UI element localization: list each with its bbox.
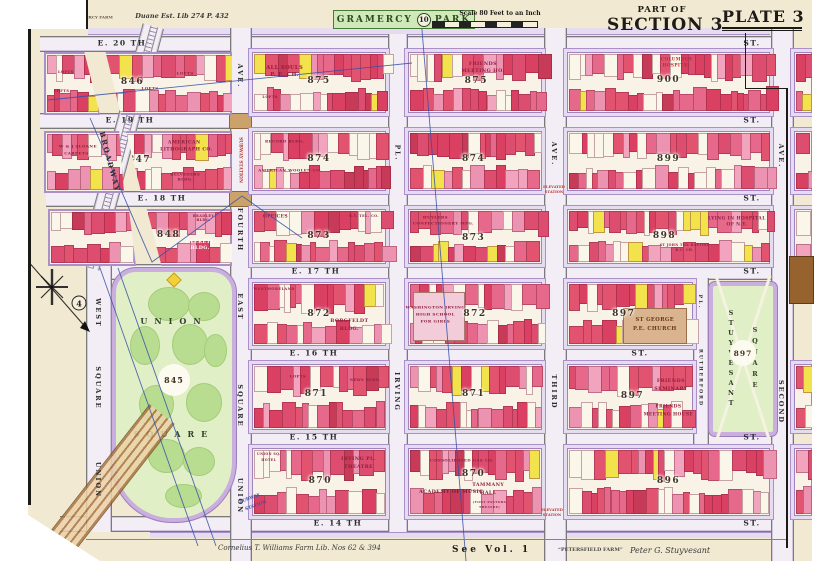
avenue-label: PL. xyxy=(697,294,703,309)
neatline-bottom xyxy=(86,539,786,540)
building-lot xyxy=(90,169,103,190)
building-lot xyxy=(187,92,201,113)
block-number: 897 xyxy=(621,391,644,401)
block-900: COLUMBUSHOSPITAL900 xyxy=(567,52,770,113)
street-suffix-e-14th: ST. xyxy=(743,519,760,528)
building-lot xyxy=(581,450,595,480)
block-874: 874 xyxy=(408,131,542,191)
building-lot xyxy=(505,170,519,189)
subway-box-18th xyxy=(229,191,252,207)
plate-underline xyxy=(722,27,802,29)
building-label: MEETING HO. xyxy=(461,68,504,74)
street-name-e-20th: E. 20 TH xyxy=(98,39,147,48)
block-number: 846 xyxy=(121,77,144,87)
building-lot xyxy=(761,243,770,262)
map-annotation: Duane Est. Lib 274 P. 432 xyxy=(135,12,228,20)
street-name-e-16th: E. 16 TH xyxy=(290,349,339,358)
building-label: CONFECTIONERY MFG. xyxy=(413,220,474,225)
street-suffix-e-18th: ST. xyxy=(743,194,760,203)
building-lot xyxy=(410,90,424,111)
building-lot xyxy=(267,366,281,393)
gramercy-park-label-left: GRAMERCY xyxy=(337,15,413,25)
block-872: WASHINGTON IRVINGHIGH SCHOOLFOR GIRLS872 xyxy=(408,282,542,346)
building-lot xyxy=(381,324,392,344)
building-lot xyxy=(796,450,809,473)
building-label: THEATRE xyxy=(344,464,373,470)
building-lot xyxy=(766,86,778,111)
part-of-label: PART OF xyxy=(607,5,717,15)
plate-ref-4: 4 xyxy=(72,296,87,311)
building-lot xyxy=(536,284,551,309)
building-lot xyxy=(525,54,539,73)
building-label: ST JOHN THE BAPTIST xyxy=(660,243,710,247)
building-lot xyxy=(330,170,345,189)
building-label: ALL SOULS xyxy=(266,65,303,71)
avenue-label: UNION xyxy=(236,478,244,514)
building-label: FRIENDS xyxy=(469,61,497,67)
block-number: 897 xyxy=(612,309,635,319)
block-number: 870 xyxy=(309,476,332,486)
building-lot xyxy=(535,407,542,428)
subway-box-19th xyxy=(229,113,252,129)
building-lot xyxy=(706,89,721,111)
building-label: LOFTS xyxy=(290,373,306,378)
map-annotation: STATION xyxy=(545,190,563,194)
building-lot xyxy=(693,87,707,111)
building-lot xyxy=(796,133,810,154)
building-lot xyxy=(431,170,445,189)
neatline-left xyxy=(28,29,31,505)
building-label: N.Y. TEL. CO. xyxy=(349,214,379,218)
building-lot xyxy=(148,247,157,263)
building-lot xyxy=(643,94,657,111)
park-foliage xyxy=(165,484,202,508)
neatline-right xyxy=(786,88,788,548)
building-lot xyxy=(90,55,101,83)
building-lot xyxy=(446,402,461,428)
building-lot xyxy=(311,327,326,344)
building-lot xyxy=(335,490,350,514)
block-sliver-24 xyxy=(794,52,812,113)
building-lot xyxy=(754,167,768,189)
scale-bar xyxy=(432,21,538,28)
building-lot xyxy=(646,488,660,514)
building-label: LOFTS xyxy=(54,89,69,93)
block-sliver-25 xyxy=(794,131,812,191)
street-suffix-e-16th: ST. xyxy=(631,349,648,358)
building-lot xyxy=(345,92,359,111)
building-lot xyxy=(221,212,231,235)
building-lot xyxy=(330,450,345,475)
building-lot xyxy=(470,165,484,189)
building-label: (TONY PASTORS xyxy=(473,500,506,504)
park-foliage xyxy=(172,324,209,365)
building-label: ACADEMY OF MUSIC xyxy=(419,489,483,495)
block-number: 875 xyxy=(465,76,488,86)
building-lot xyxy=(377,91,388,111)
block-874: RECORD BLDG.AMERICAN WOOLEN CO.874 xyxy=(252,131,386,191)
map-annotation: ELEVATED xyxy=(541,508,563,512)
avenue-label: IRVING xyxy=(393,372,401,412)
street-name-e-18th: E. 18 TH xyxy=(138,194,187,203)
street-name-e-14th: E. 14 TH xyxy=(314,519,363,528)
block-number: 873 xyxy=(462,233,485,243)
building-lot xyxy=(766,54,776,76)
building-label: LOFTS xyxy=(262,95,277,99)
building-label: CONSOLIDATED GAS CO. xyxy=(430,457,494,462)
building-lot xyxy=(760,492,769,514)
street-name-e-17th: E. 17 TH xyxy=(292,267,341,276)
building-lot xyxy=(300,93,314,111)
building-lot xyxy=(616,284,630,307)
block-870: CONSOLIDATED GAS CO.ACADEMY OF MUSICTAMM… xyxy=(408,448,542,516)
block-number: 870 xyxy=(462,469,485,479)
building-lot xyxy=(381,166,391,189)
stuyvesant-square-park: STUYVESANTSQUARE897 xyxy=(709,282,777,436)
block-number: 900 xyxy=(657,75,680,85)
avenue-label: SQUARE xyxy=(94,366,102,409)
building-label: NEWS BLDG. xyxy=(350,378,381,382)
plate-title: PLATE 3 xyxy=(722,7,802,26)
building-lot xyxy=(588,366,602,393)
block-sliver-2 xyxy=(48,209,136,266)
block-896: 896 xyxy=(567,448,770,516)
building-lot xyxy=(352,410,365,428)
block-875: ALL SOULSP. E. CH.LOFTS875 xyxy=(252,52,386,113)
building-lot xyxy=(357,133,370,160)
union-square-label: UNION xyxy=(140,316,207,326)
building-label: HALL xyxy=(480,490,497,496)
block-number: 896 xyxy=(657,476,680,486)
building-lot xyxy=(623,172,637,189)
building-label: WESTMORELAND xyxy=(253,287,294,291)
stuyvesant-number: 897 xyxy=(730,340,756,366)
building-lot xyxy=(478,408,492,428)
building-lot xyxy=(575,366,589,390)
avenue-label: RUTHERFORD xyxy=(698,349,703,407)
building-label: AMERICAN xyxy=(168,141,201,146)
avenue-label: SECOND xyxy=(777,380,785,424)
building-label: ST GEORGE xyxy=(635,317,674,323)
park-foliage xyxy=(204,334,227,368)
building-lot xyxy=(655,211,669,229)
block-897: ST GEORGEP.E. CHURCH897 xyxy=(567,282,693,346)
building-lot xyxy=(161,55,176,78)
building-label: SEMINARY xyxy=(654,386,687,392)
map-annotation: STATION xyxy=(543,513,561,517)
building-lot xyxy=(135,89,150,112)
map-canvas: E. 20 THST.E. 19 THST.E. 18 THST.E. 17 T… xyxy=(0,0,819,561)
building-lot xyxy=(254,366,268,392)
building-lot xyxy=(375,284,384,307)
building-label: W & J SLOANE xyxy=(59,143,97,148)
block-875: FRIENDSMEETING HO.875 xyxy=(408,52,542,113)
building-lot xyxy=(296,494,309,514)
building-lot xyxy=(569,488,583,514)
block-number: 871 xyxy=(305,389,328,399)
building-lot xyxy=(683,284,696,304)
street-suffix-e-19th: ST. xyxy=(743,116,760,125)
building-label: EVERETT xyxy=(186,239,214,245)
street-name-e-19th: E. 19 TH xyxy=(106,116,155,125)
building-lot xyxy=(72,212,85,230)
building-lot xyxy=(332,93,346,111)
building-lot xyxy=(120,246,134,263)
building-label: OF N.Y. xyxy=(727,223,748,228)
block-871: 871 xyxy=(408,364,542,430)
building-lot xyxy=(91,212,104,234)
building-label: HUYLERS xyxy=(423,215,448,220)
building-lot xyxy=(348,491,363,514)
building-lot xyxy=(381,211,394,229)
building-lot xyxy=(119,55,133,79)
block-870: UNION SQ.HOTELIRVING PL.THEATRE870 xyxy=(252,448,386,516)
avenue-label: AVE. xyxy=(777,144,785,169)
building-lot xyxy=(376,133,388,160)
building-lot xyxy=(177,243,190,263)
building-label: COLUMBUS xyxy=(661,56,692,61)
building-lot xyxy=(127,168,138,190)
building-label: BLDG. xyxy=(340,326,359,332)
building-lot xyxy=(767,167,778,190)
building-lot xyxy=(642,168,655,189)
building-lot xyxy=(532,366,543,387)
building-lot xyxy=(518,94,531,111)
building-lot xyxy=(522,284,537,305)
block-899: 899 xyxy=(567,131,770,191)
building-lot xyxy=(615,92,630,111)
building-lot xyxy=(320,366,334,387)
building-lot xyxy=(437,133,450,157)
building-lot xyxy=(383,54,394,74)
building-lot xyxy=(604,54,618,77)
building-lot xyxy=(269,410,283,428)
building-lot xyxy=(376,401,385,428)
building-lot xyxy=(752,54,767,82)
building-lot xyxy=(718,133,732,154)
block-872: WESTMORELANDBORGFELDTBLDG.872 xyxy=(252,282,386,346)
building-lot xyxy=(728,489,743,514)
street-name-e-15th: E. 15 TH xyxy=(290,433,339,442)
avenue-label: AVE. xyxy=(550,142,558,167)
building-label: P. E. CH. xyxy=(270,72,299,78)
flagpole-star xyxy=(166,272,182,288)
building-lot xyxy=(382,246,397,262)
footer-see-vol: See Vol. 1 xyxy=(452,545,531,555)
block-number: 874 xyxy=(307,154,330,164)
building-lot xyxy=(686,319,699,344)
block-846: LOFTSLOFTS846 xyxy=(103,52,232,115)
block-897: FRIENDSSEMINARYFRIENDSMEETING HOUSE897 xyxy=(567,364,693,430)
building-label: AMERICAN WOOLEN CO. xyxy=(258,168,321,173)
union-square-number: 845 xyxy=(158,364,190,396)
building-lot xyxy=(505,366,520,387)
block-873: OFFICESN.Y. TEL. CO.873 xyxy=(252,209,386,264)
block-number: 871 xyxy=(462,389,485,399)
building-lot xyxy=(538,211,550,237)
building-lot xyxy=(526,241,540,262)
building-lot xyxy=(605,450,619,478)
building-label: FOR GIRLS xyxy=(421,319,451,324)
block-number: 874 xyxy=(462,154,485,164)
footer-petersfield: “PETERSFIELD FARM” xyxy=(558,547,623,553)
building-lot xyxy=(223,167,232,190)
building-label: HIGH SCHOOL xyxy=(416,312,455,317)
building-lot xyxy=(569,133,583,154)
building-lot xyxy=(88,96,99,112)
page-edge-left xyxy=(0,0,28,561)
building-lot xyxy=(420,246,433,262)
avenue-label: AVE. xyxy=(236,64,244,89)
atlas-plate-page: E. 20 THST.E. 19 THST.E. 18 THST.E. 17 T… xyxy=(0,0,819,561)
building-lot xyxy=(512,54,526,81)
block-sliver-0: LOFTSLOFTS xyxy=(44,52,100,115)
building-label: OFFICES xyxy=(263,215,288,220)
building-label: BLDG. xyxy=(191,245,210,251)
building-lot xyxy=(376,493,386,514)
building-label: UNION SQ. xyxy=(257,452,281,456)
neatline-top-right-h xyxy=(745,88,787,89)
footer-farm-note: Cornelius T. Williams Farm Lib. Nos 62 &… xyxy=(218,544,381,552)
block-sliver-28 xyxy=(794,448,812,516)
building-label: BLDG. xyxy=(177,177,193,182)
block-number: 847 xyxy=(128,155,151,165)
building-lot xyxy=(418,366,431,392)
block-number: 848 xyxy=(157,230,180,240)
building-label: HOSPITAL xyxy=(663,62,691,67)
avenue-label: FOURTH xyxy=(236,208,244,252)
map-annotation: SUBWAY STATION xyxy=(238,137,243,183)
neatline-top-left xyxy=(86,0,88,29)
block-871: LOFTSNEWS BLDG.871 xyxy=(252,364,386,430)
building-lot xyxy=(51,246,65,263)
building-label: THEATRE) xyxy=(479,505,500,509)
park-foliage xyxy=(183,447,215,476)
building-lot xyxy=(803,486,811,514)
block-number: 873 xyxy=(307,231,330,241)
block-number: 899 xyxy=(657,154,680,164)
building-lot xyxy=(763,450,777,479)
building-lot xyxy=(796,211,811,236)
block-number: 875 xyxy=(307,76,330,86)
page-tab xyxy=(789,256,814,304)
building-lot xyxy=(314,284,329,309)
building-label: CARPETS xyxy=(64,150,88,155)
building-lot xyxy=(333,284,346,305)
building-lot xyxy=(602,284,617,310)
building-lot xyxy=(538,54,552,79)
building-lot xyxy=(55,173,69,190)
avenue-label: THIRD xyxy=(550,374,558,409)
building-lot xyxy=(761,133,770,161)
building-lot xyxy=(527,170,540,189)
building-lot xyxy=(126,212,137,231)
avenue-label: PL. xyxy=(394,145,401,162)
avenue-label: WEST xyxy=(94,298,102,328)
building-lot xyxy=(655,165,670,189)
section-title: SECTION 3 xyxy=(607,15,717,35)
park-foliage xyxy=(130,326,160,365)
building-lot xyxy=(289,211,302,235)
building-lot xyxy=(638,366,653,388)
building-lot xyxy=(618,450,631,474)
building-lot xyxy=(123,89,137,112)
building-lot xyxy=(73,248,88,263)
building-label: LOFTS xyxy=(176,70,193,75)
building-lot xyxy=(633,490,647,514)
building-lot xyxy=(87,244,101,263)
street-suffix-e-15th: ST. xyxy=(743,433,760,442)
avenue-label: SQUARE xyxy=(236,384,244,427)
building-lot xyxy=(569,326,584,344)
street-irving-pl xyxy=(388,34,408,532)
block-number: 872 xyxy=(307,309,330,319)
footer-stuyvesant: Peter G. Stuyvesant xyxy=(630,546,710,555)
park-foliage xyxy=(186,383,223,422)
building-lot xyxy=(732,450,747,471)
block-873: HUYLERSCONFECTIONERY MFG.873 xyxy=(408,209,542,264)
building-label: LITHOGRAPH CO. xyxy=(160,148,212,153)
building-lot xyxy=(538,323,546,344)
building-lot xyxy=(524,211,539,230)
building-label: R.C. CH. xyxy=(675,248,693,252)
building-label: BLDG. xyxy=(196,218,210,222)
building-lot xyxy=(410,168,424,189)
building-label: RECORD BLDG. xyxy=(265,138,304,143)
building-label: IRVING PL. xyxy=(341,456,376,462)
block-847: AMERICANLITHOGRAPH CO.BELVEDEREBLDG.847 xyxy=(124,131,232,193)
building-lot xyxy=(656,133,670,154)
building-lot xyxy=(534,133,542,153)
building-lot xyxy=(602,320,617,344)
building-lot xyxy=(315,247,330,262)
building-lot xyxy=(106,55,120,74)
avenue-label: EAST xyxy=(236,293,244,321)
building-lot xyxy=(802,94,812,111)
street-suffix-e-17th: ST. xyxy=(743,267,760,276)
building-lot xyxy=(514,241,527,262)
building-label: FRIENDS xyxy=(655,405,681,410)
building-lot xyxy=(225,134,231,154)
building-label: HOTEL xyxy=(261,458,276,462)
building-lot xyxy=(254,324,268,344)
building-label: MEETING HOUSE xyxy=(644,412,694,417)
block-number: 898 xyxy=(653,231,676,241)
block-sliver-27 xyxy=(794,364,812,430)
building-lot xyxy=(536,92,547,111)
avenue-label: UNION xyxy=(94,462,102,498)
building-lot xyxy=(628,242,642,262)
building-lot xyxy=(478,211,491,233)
building-label: LOFTS xyxy=(58,70,73,74)
building-label: BELVEDERE xyxy=(170,171,200,176)
plate-underline-2 xyxy=(722,30,802,31)
building-lot xyxy=(721,169,735,189)
building-lot xyxy=(719,450,733,481)
block-number: 872 xyxy=(463,309,486,319)
building-label: TAMMANY xyxy=(472,482,504,488)
building-lot xyxy=(362,489,377,514)
map-annotation: ELEVATED xyxy=(543,185,565,189)
building-lot xyxy=(741,166,754,189)
building-label: P.E. CHURCH xyxy=(633,326,677,332)
building-lot xyxy=(282,402,297,428)
union-square-park: UNIONSQUARE845 xyxy=(112,268,236,522)
building-lot xyxy=(592,54,605,74)
building-lot xyxy=(685,366,692,387)
building-label: LYING IN HOSPITAL xyxy=(708,217,766,222)
building-lot xyxy=(529,450,540,479)
